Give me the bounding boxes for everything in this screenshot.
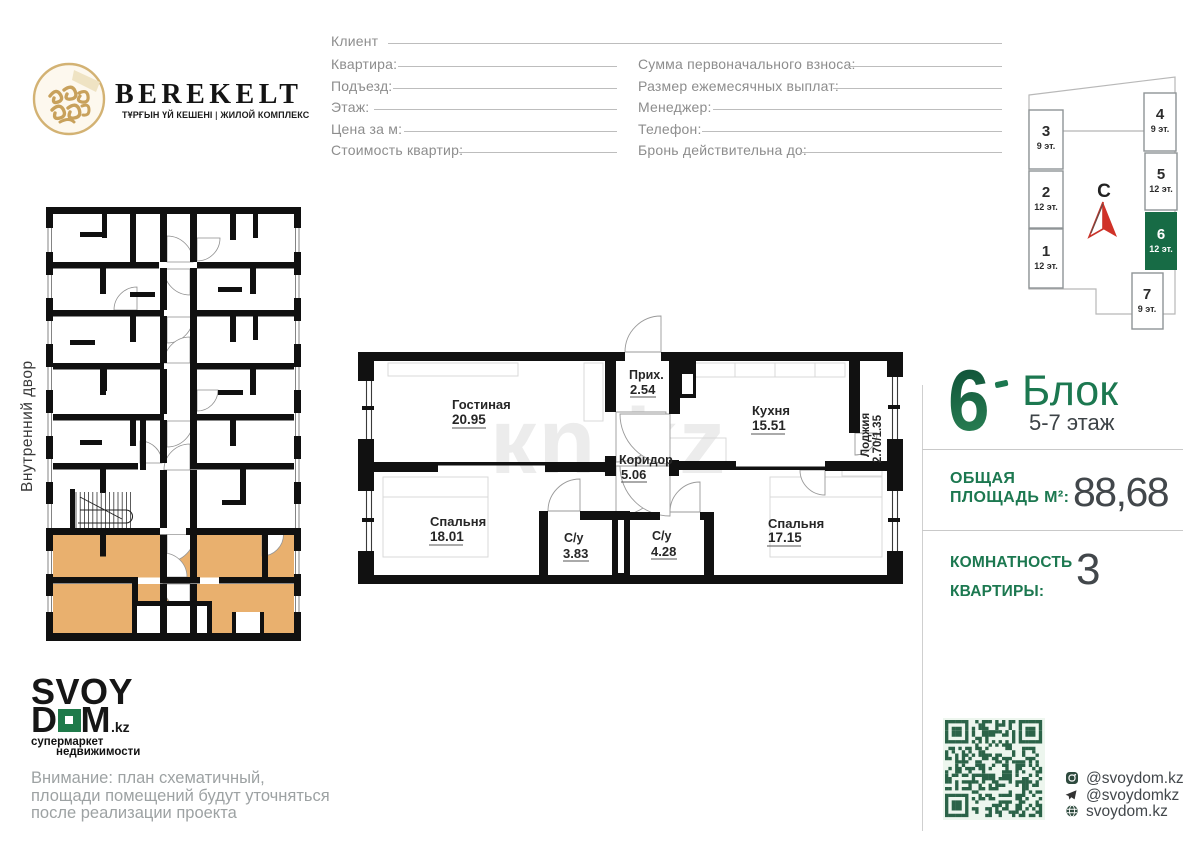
svg-text:С: С bbox=[1097, 181, 1111, 202]
svg-text:12 эт.: 12 эт. bbox=[1149, 184, 1172, 194]
svg-text:6: 6 bbox=[1157, 226, 1165, 243]
svg-text:Прих.: Прих. bbox=[629, 368, 664, 382]
svg-text:12 эт.: 12 эт. bbox=[1149, 244, 1172, 254]
svg-text:5: 5 bbox=[1157, 166, 1165, 183]
svg-text:9 эт.: 9 эт. bbox=[1037, 141, 1055, 151]
svg-text:9 эт.: 9 эт. bbox=[1151, 124, 1169, 134]
svg-text:4: 4 bbox=[1156, 106, 1165, 123]
svg-text:2: 2 bbox=[1042, 184, 1050, 201]
svg-text:7: 7 bbox=[1143, 286, 1151, 303]
svg-text:2.54: 2.54 bbox=[630, 382, 656, 397]
svg-text:20.95: 20.95 bbox=[452, 412, 486, 427]
svg-text:9 эт.: 9 эт. bbox=[1138, 304, 1156, 314]
svg-text:4.28: 4.28 bbox=[651, 544, 676, 559]
svg-text:18.01: 18.01 bbox=[430, 529, 464, 544]
svg-text:3.83: 3.83 bbox=[563, 546, 588, 561]
svg-text:12 эт.: 12 эт. bbox=[1034, 261, 1057, 271]
svg-text:С/у: С/у bbox=[564, 531, 584, 545]
svg-text:С/у: С/у bbox=[652, 529, 672, 543]
svg-text:17.15: 17.15 bbox=[768, 530, 802, 545]
svg-text:5.06: 5.06 bbox=[621, 467, 646, 482]
svg-text:15.51: 15.51 bbox=[752, 418, 786, 433]
svg-text:12 эт.: 12 эт. bbox=[1034, 202, 1057, 212]
svg-text:3: 3 bbox=[1042, 123, 1050, 140]
svg-text:Лоджия2.70/1.35: Лоджия2.70/1.35 bbox=[860, 413, 884, 463]
svg-text:Гостиная: Гостиная bbox=[452, 397, 511, 412]
svg-text:Кухня: Кухня bbox=[752, 403, 790, 418]
svg-text:1: 1 bbox=[1042, 243, 1050, 260]
svg-text:Спальня: Спальня bbox=[430, 514, 486, 529]
svg-text:Спальня: Спальня bbox=[768, 516, 824, 531]
svg-text:Коридор: Коридор bbox=[619, 453, 673, 467]
svg-text:Внутренний двор: Внутренний двор bbox=[19, 360, 36, 492]
